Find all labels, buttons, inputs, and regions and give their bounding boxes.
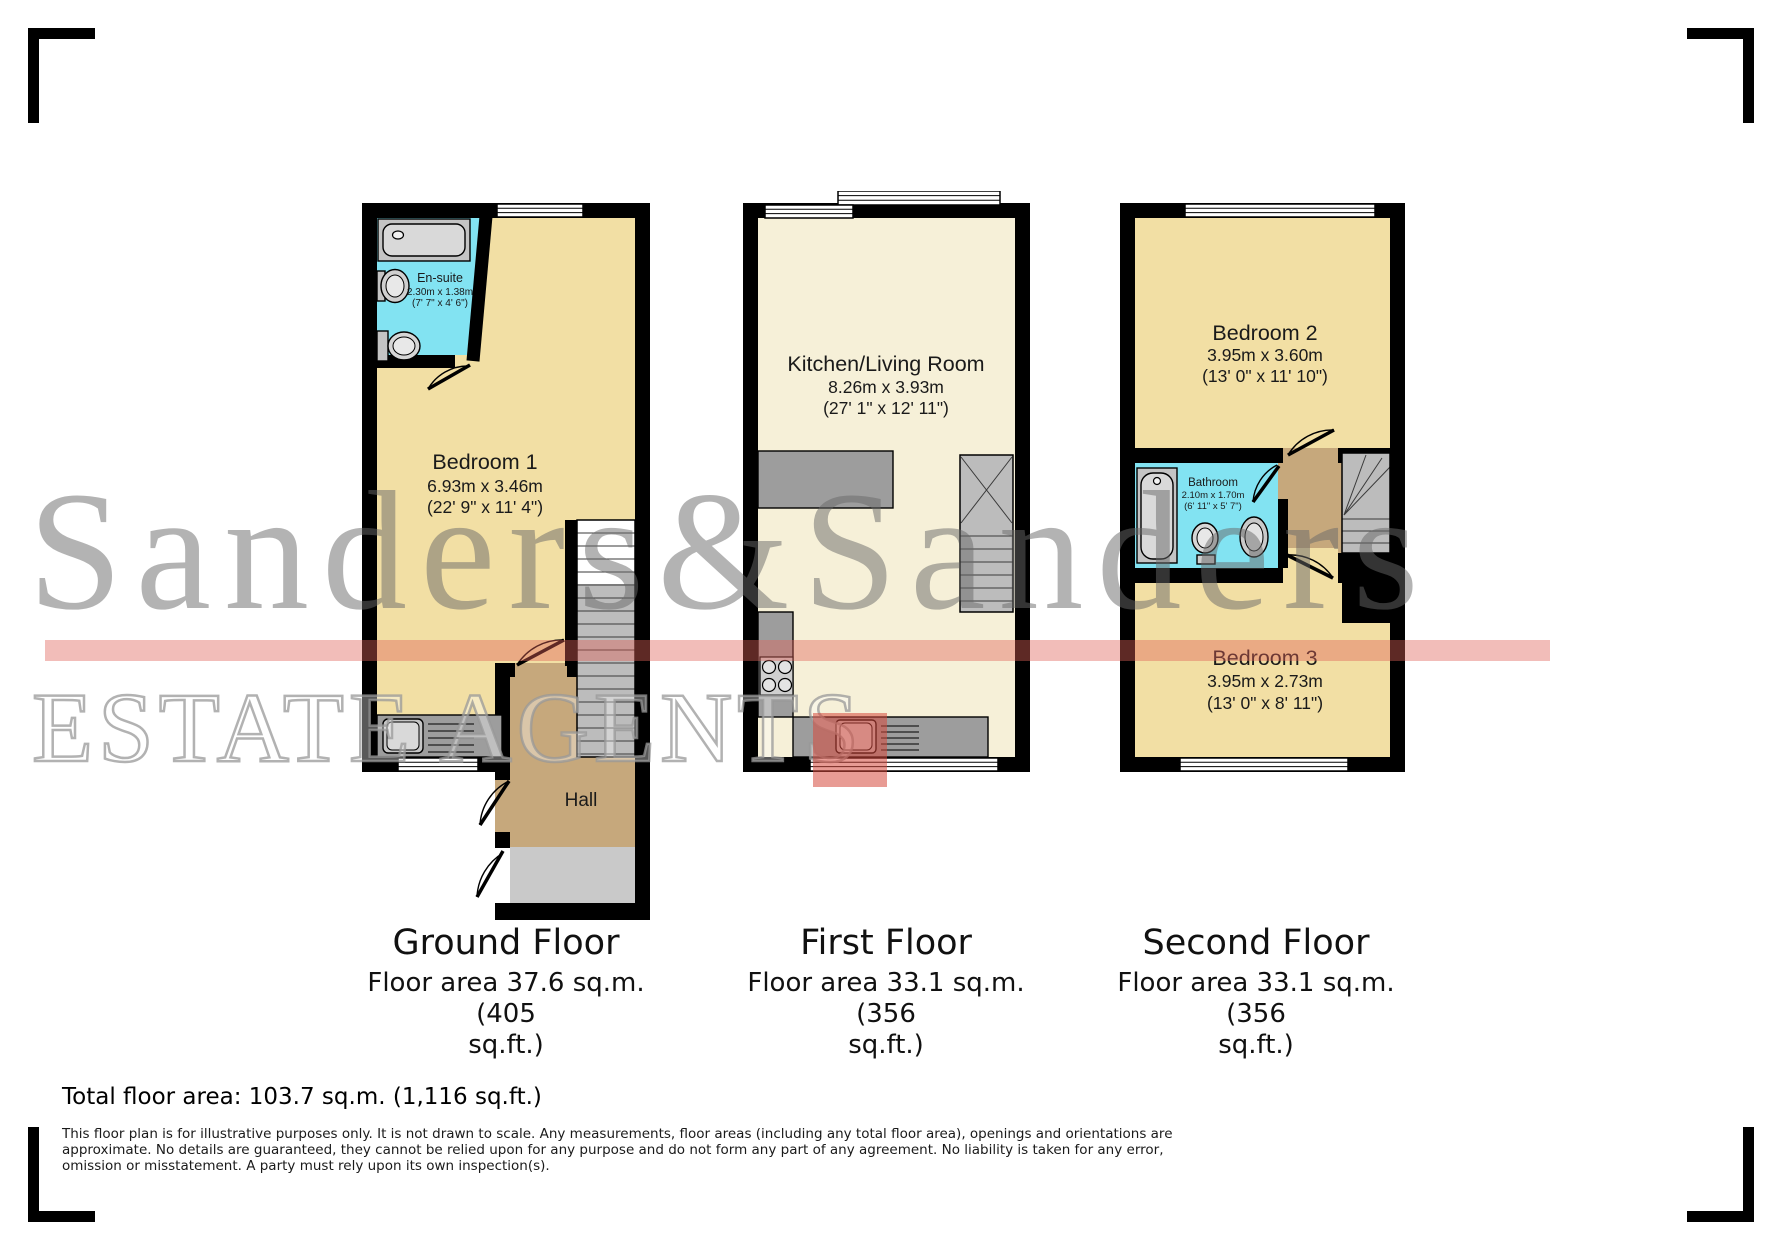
basin-icon: [377, 270, 409, 303]
ground-floor-title: Ground Floor: [336, 923, 676, 963]
first-floor-area: Floor area 33.1 sq.m. (356 sq.ft.): [716, 968, 1056, 1061]
hall-label: Hall: [565, 790, 598, 811]
watermark-red-underline: [45, 640, 1550, 661]
bedroom2-label: Bedroom 2: [1212, 321, 1317, 345]
first-top-window-right: [838, 191, 1000, 205]
second-floor-caption: Second Floor Floor area 33.1 sq.m. (356 …: [1086, 923, 1426, 1061]
watermark-brand-text: Sanders&Sanders: [28, 466, 1432, 636]
ground-top-window: [497, 204, 583, 217]
bath-icon: [378, 219, 470, 261]
total-floor-area: Total floor area: 103.7 sq.m. (1,116 sq.…: [62, 1084, 542, 1110]
porch-floor: [510, 847, 635, 903]
crop-mark-top-right: [1687, 28, 1754, 123]
bedroom2-imperial: (13' 0" x 11' 10"): [1202, 366, 1328, 386]
bedroom3-imperial: (13' 0" x 8' 11"): [1207, 693, 1323, 713]
ensuite-bottom-wall: [377, 355, 455, 368]
ensuite-imperial: (7' 7" x 4' 6"): [412, 298, 468, 309]
ground-floor-area: Floor area 37.6 sq.m. (405 sq.ft.): [336, 968, 676, 1061]
ensuite-label: En-suite: [417, 271, 463, 285]
second-floor-title: Second Floor: [1086, 923, 1426, 963]
disclaimer-line-2: approximate. No details are guaranteed, …: [62, 1143, 1173, 1159]
watermark-red-square: [813, 713, 887, 787]
watermark-tagline-text: ESTATE AGENTS: [32, 678, 864, 778]
disclaimer-line-1: This floor plan is for illustrative purp…: [62, 1127, 1173, 1143]
crop-mark-bottom-right: [1687, 1127, 1754, 1222]
second-floor-area: Floor area 33.1 sq.m. (356 sq.ft.): [1086, 968, 1426, 1061]
second-top-window: [1185, 204, 1375, 217]
floor-plan-page: En-suite 2.30m x 1.38m (7' 7" x 4' 6") B…: [0, 0, 1771, 1239]
disclaimer-line-3: omission or misstatement. A party must r…: [62, 1159, 1173, 1175]
bedroom2-metric: 3.95m x 3.60m: [1207, 345, 1323, 365]
crop-mark-top-left: [28, 28, 95, 123]
kitchen-imperial: (27' 1" x 12' 11"): [823, 398, 949, 418]
toilet-icon: [377, 331, 420, 361]
ensuite-metric: 2.30m x 1.38m: [407, 287, 473, 298]
bedroom3-metric: 3.95m x 2.73m: [1207, 671, 1323, 691]
disclaimer-text: This floor plan is for illustrative purp…: [62, 1127, 1173, 1175]
second-bottom-window: [1180, 758, 1348, 771]
first-floor-title: First Floor: [716, 923, 1056, 963]
kitchen-label: Kitchen/Living Room: [787, 352, 984, 376]
kitchen-metric: 8.26m x 3.93m: [828, 377, 944, 397]
first-floor-caption: First Floor Floor area 33.1 sq.m. (356 s…: [716, 923, 1056, 1061]
ground-floor-caption: Ground Floor Floor area 37.6 sq.m. (405 …: [336, 923, 676, 1061]
first-top-window-left: [765, 205, 853, 218]
